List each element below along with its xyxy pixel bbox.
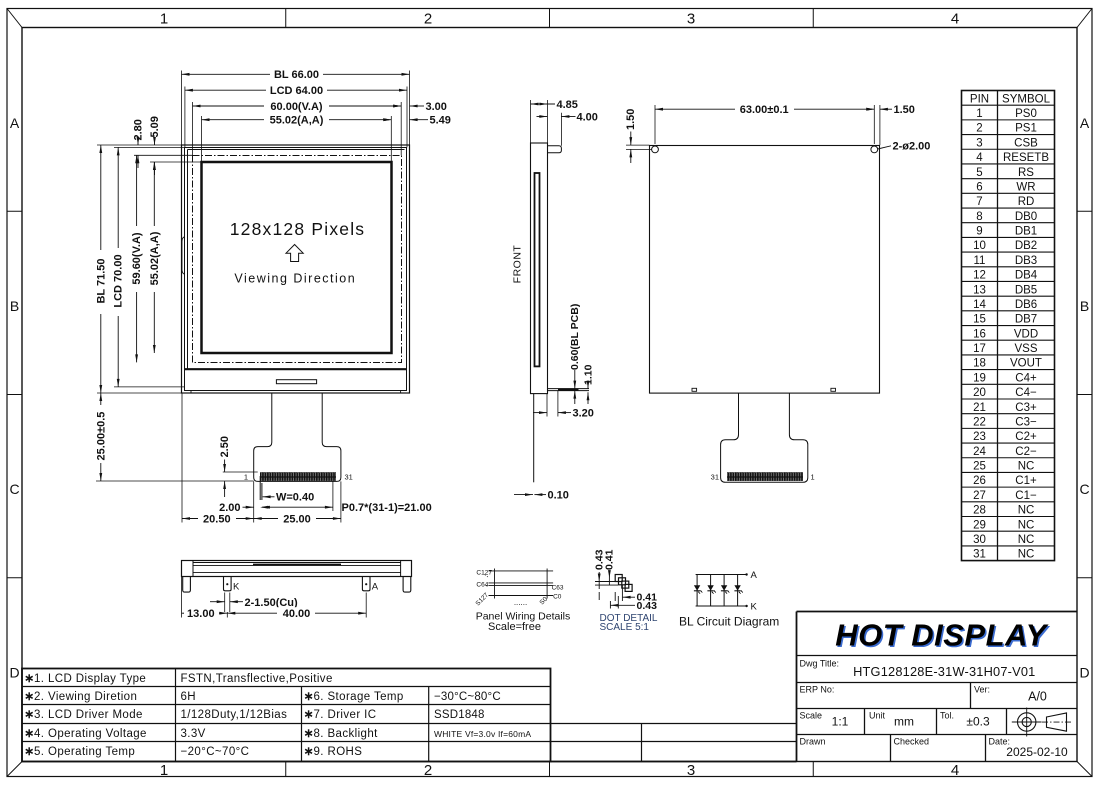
svg-text:D: D: [9, 665, 19, 681]
svg-text:14: 14: [973, 299, 986, 311]
svg-text:12: 12: [973, 270, 986, 282]
svg-text:PS0: PS0: [1015, 108, 1037, 120]
svg-text:C3−: C3−: [1015, 416, 1037, 428]
svg-text:40.00: 40.00: [283, 608, 311, 620]
svg-text:22: 22: [973, 416, 986, 428]
svg-text:28: 28: [973, 505, 986, 517]
svg-text:3: 3: [687, 762, 695, 779]
svg-text:4: 4: [951, 11, 959, 28]
svg-text:27: 27: [973, 490, 986, 502]
svg-text:Drawn: Drawn: [800, 737, 826, 747]
svg-text:C4−: C4−: [1015, 387, 1037, 399]
svg-text:23: 23: [973, 431, 986, 443]
svg-text:1: 1: [160, 762, 168, 779]
svg-text:31: 31: [345, 472, 353, 481]
svg-text:Scale: Scale: [800, 711, 823, 721]
svg-text:3: 3: [687, 11, 695, 28]
svg-text:5.09: 5.09: [149, 116, 161, 137]
svg-text:3: 3: [976, 137, 982, 149]
svg-text:2025-02-10: 2025-02-10: [1006, 745, 1068, 759]
svg-text:0.10: 0.10: [548, 490, 569, 502]
svg-text:LCD 64.00: LCD 64.00: [270, 85, 323, 97]
svg-text:2. Viewing Diretion: 2. Viewing Diretion: [34, 691, 137, 703]
svg-text:3. LCD Driver Mode: 3. LCD Driver Mode: [34, 709, 143, 721]
svg-text:HOT DISPLAY: HOT DISPLAY: [835, 618, 1049, 653]
svg-text:5.49: 5.49: [430, 115, 451, 127]
svg-text:4: 4: [976, 152, 983, 164]
svg-text:11: 11: [974, 255, 986, 267]
svg-text:55.02(A,A): 55.02(A,A): [270, 115, 324, 127]
svg-text:C64: C64: [476, 582, 488, 589]
svg-text:2-1.50(Cu): 2-1.50(Cu): [245, 597, 299, 609]
svg-text:Ver:: Ver:: [974, 685, 990, 695]
svg-text:0.60(BL PCB): 0.60(BL PCB): [569, 304, 581, 370]
svg-text:10: 10: [973, 240, 986, 252]
svg-text:K: K: [233, 582, 240, 593]
svg-text:BL Circuit Diagram: BL Circuit Diagram: [679, 615, 779, 629]
svg-text:−30°C~80°C: −30°C~80°C: [434, 691, 501, 703]
svg-text:4: 4: [951, 762, 959, 779]
svg-text:FRONT: FRONT: [512, 245, 524, 284]
svg-text:1.50: 1.50: [625, 109, 637, 130]
svg-text:30: 30: [973, 534, 986, 546]
svg-text:9. ROHS: 9. ROHS: [314, 746, 363, 758]
svg-text:DB0: DB0: [1015, 211, 1037, 223]
svg-text:WR: WR: [1016, 181, 1035, 193]
svg-text:Scale=free: Scale=free: [488, 621, 541, 633]
svg-text:4. Operating Voltage: 4. Operating Voltage: [34, 728, 147, 740]
svg-text:VDD: VDD: [1014, 328, 1038, 340]
svg-text:A: A: [1080, 115, 1090, 131]
svg-text:A: A: [10, 115, 20, 131]
svg-text:VOUT: VOUT: [1010, 358, 1042, 370]
svg-text:13: 13: [973, 284, 986, 296]
svg-text:SCALE 5:1: SCALE 5:1: [600, 622, 650, 633]
svg-text:3.20: 3.20: [573, 408, 594, 420]
svg-text:1: 1: [811, 472, 815, 481]
svg-text:A: A: [751, 570, 758, 581]
svg-text:13.00: 13.00: [187, 608, 215, 620]
svg-text:31: 31: [711, 472, 719, 481]
svg-text:PIN: PIN: [970, 93, 989, 105]
svg-text:59.60(V.A): 59.60(V.A): [131, 232, 143, 285]
svg-text:9: 9: [976, 226, 982, 238]
svg-text:DB4: DB4: [1015, 270, 1038, 282]
svg-text:RESETB: RESETB: [1003, 152, 1049, 164]
svg-text:20: 20: [973, 387, 986, 399]
svg-text:C: C: [9, 481, 19, 497]
svg-text:......: ......: [514, 598, 527, 607]
svg-text:55.02(A,A): 55.02(A,A): [149, 231, 161, 285]
svg-text:29: 29: [973, 519, 986, 531]
svg-text:128x128 Pixels: 128x128 Pixels: [230, 219, 366, 239]
svg-text:C1−: C1−: [1015, 490, 1037, 502]
svg-text:19: 19: [973, 372, 986, 384]
svg-text:7: 7: [976, 196, 982, 208]
svg-text:1.10: 1.10: [582, 364, 594, 385]
svg-text:26: 26: [973, 475, 986, 487]
svg-text:P0.7*(31-1)=21.00: P0.7*(31-1)=21.00: [342, 502, 432, 514]
svg-text:VSS: VSS: [1014, 343, 1037, 355]
svg-text:D: D: [1079, 665, 1089, 681]
svg-text:8. Backlight: 8. Backlight: [314, 728, 379, 740]
svg-text:1.50: 1.50: [894, 104, 915, 116]
svg-text:7. Driver IC: 7. Driver IC: [314, 709, 377, 721]
svg-text:0.43: 0.43: [637, 600, 658, 612]
svg-text:DB7: DB7: [1015, 314, 1037, 326]
svg-text:2.80: 2.80: [133, 119, 145, 140]
svg-text:0.41: 0.41: [604, 549, 616, 570]
svg-text:WHITE Vf=3.0v If=60mA: WHITE Vf=3.0v If=60mA: [434, 729, 531, 739]
svg-text:2: 2: [976, 123, 982, 135]
svg-text:DB5: DB5: [1015, 284, 1037, 296]
svg-text:18: 18: [973, 358, 986, 370]
svg-text:BL 71.50: BL 71.50: [95, 258, 107, 303]
svg-text:NC: NC: [1018, 519, 1035, 531]
svg-text:21: 21: [973, 402, 986, 414]
svg-text:Viewing Direction: Viewing Direction: [234, 271, 356, 285]
svg-text:15: 15: [973, 314, 986, 326]
svg-text:2.00: 2.00: [219, 502, 240, 514]
svg-text:31: 31: [973, 549, 986, 561]
svg-text:63.00±0.1: 63.00±0.1: [740, 104, 789, 116]
svg-text:3.00: 3.00: [426, 101, 447, 113]
svg-text:K: K: [751, 602, 758, 613]
svg-text:W=0.40: W=0.40: [276, 491, 314, 503]
svg-text:NC: NC: [1018, 505, 1035, 517]
svg-text:5: 5: [976, 167, 982, 179]
svg-text:DB2: DB2: [1015, 240, 1037, 252]
svg-text:B: B: [1080, 298, 1089, 314]
svg-text:NC: NC: [1018, 549, 1035, 561]
svg-text:Unit: Unit: [869, 711, 886, 721]
svg-text:mm: mm: [894, 715, 914, 729]
svg-text:1: 1: [244, 472, 248, 481]
svg-text:ERP No:: ERP No:: [800, 685, 835, 695]
svg-text:6H: 6H: [181, 691, 197, 703]
svg-text:C1+: C1+: [1015, 475, 1037, 487]
svg-text:LCD 70.00: LCD 70.00: [113, 254, 125, 307]
svg-text:NC: NC: [1018, 461, 1035, 473]
svg-text:NC: NC: [1018, 534, 1035, 546]
svg-text:Tol.: Tol.: [940, 711, 954, 721]
svg-text:25.00: 25.00: [283, 513, 311, 525]
svg-text:PS1: PS1: [1015, 123, 1037, 135]
svg-text:2: 2: [424, 762, 432, 779]
svg-text:25: 25: [973, 461, 986, 473]
svg-text:FSTN,Transflective,Positive: FSTN,Transflective,Positive: [181, 673, 333, 685]
svg-text:Checked: Checked: [894, 737, 930, 747]
svg-text:C127: C127: [476, 570, 492, 577]
svg-text:SSD1848: SSD1848: [434, 709, 485, 721]
svg-text:C: C: [1079, 481, 1089, 497]
svg-text:BL 66.00: BL 66.00: [274, 69, 319, 81]
svg-text:24: 24: [973, 446, 986, 458]
svg-text:A: A: [372, 582, 379, 593]
svg-text:8: 8: [976, 211, 982, 223]
svg-text:SYMBOL: SYMBOL: [1002, 93, 1051, 105]
svg-text:4.85: 4.85: [557, 99, 578, 111]
svg-text:1:1: 1:1: [832, 715, 849, 729]
svg-text:6. Storage Temp: 6. Storage Temp: [314, 691, 404, 703]
svg-text:1: 1: [976, 108, 982, 120]
svg-text:C63: C63: [552, 585, 564, 592]
svg-text:6: 6: [976, 181, 982, 193]
svg-text:2-ø2.00: 2-ø2.00: [893, 141, 931, 153]
svg-text:1. LCD Display Type: 1. LCD Display Type: [34, 673, 146, 685]
svg-text:C2−: C2−: [1015, 446, 1037, 458]
svg-text:DB3: DB3: [1015, 255, 1037, 267]
svg-text:25.00±0.5: 25.00±0.5: [95, 412, 107, 461]
svg-text:C3+: C3+: [1015, 402, 1037, 414]
svg-text:DB1: DB1: [1015, 226, 1037, 238]
svg-text:A/0: A/0: [1028, 690, 1047, 704]
svg-text:20.50: 20.50: [203, 513, 231, 525]
svg-text:RD: RD: [1018, 196, 1035, 208]
svg-text:C2+: C2+: [1015, 431, 1037, 443]
svg-text:16: 16: [973, 328, 986, 340]
svg-text:RS: RS: [1018, 167, 1034, 179]
svg-text:B: B: [10, 298, 19, 314]
svg-text:±0.3: ±0.3: [966, 715, 990, 729]
svg-text:3.3V: 3.3V: [181, 728, 206, 740]
svg-text:4.00: 4.00: [577, 111, 598, 123]
svg-text:2.50: 2.50: [219, 436, 231, 457]
svg-text:C4+: C4+: [1015, 372, 1037, 384]
svg-text:1: 1: [160, 11, 168, 28]
svg-text:5. Operating Temp: 5. Operating Temp: [34, 746, 135, 758]
svg-text:2: 2: [424, 11, 432, 28]
svg-text:CSB: CSB: [1014, 137, 1038, 149]
svg-text:−20°C~70°C: −20°C~70°C: [181, 746, 250, 758]
svg-text:1/128Duty,1/12Bias: 1/128Duty,1/12Bias: [181, 709, 288, 721]
svg-text:Dwg Title:: Dwg Title:: [800, 659, 840, 669]
svg-text:60.00(V.A): 60.00(V.A): [270, 101, 323, 113]
svg-text:DB6: DB6: [1015, 299, 1037, 311]
svg-text:C0: C0: [553, 594, 562, 601]
svg-text:17: 17: [973, 343, 986, 355]
svg-text:HTG128128E-31W-31H07-V01: HTG128128E-31W-31H07-V01: [853, 664, 1035, 679]
